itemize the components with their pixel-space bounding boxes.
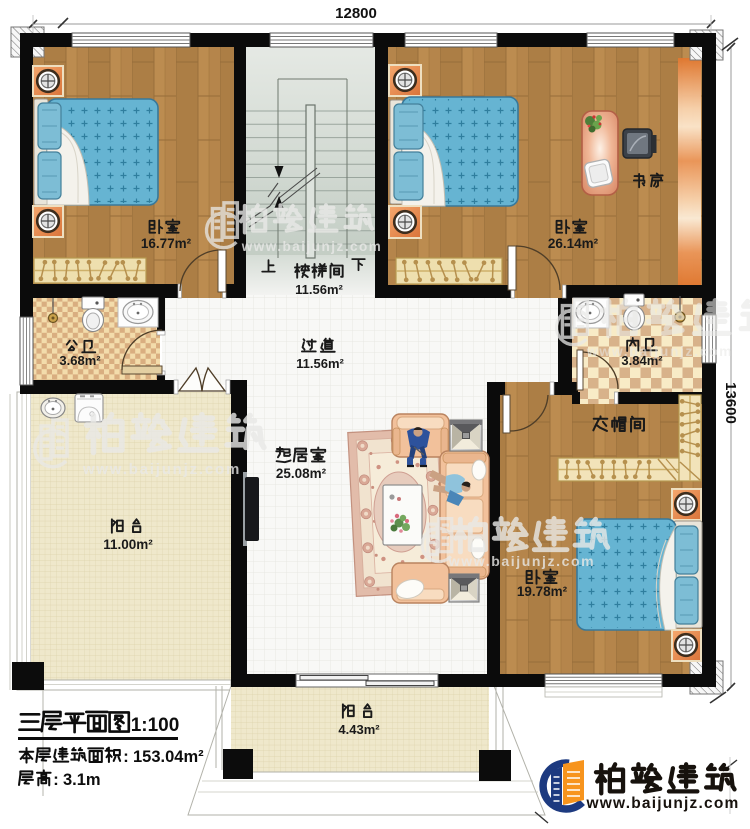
svg-text:19.78m²: 19.78m² — [517, 584, 568, 599]
svg-text:11.00m²: 11.00m² — [103, 537, 153, 552]
svg-text:26.14m²: 26.14m² — [548, 236, 599, 251]
svg-text:www.baijunjz.com: www.baijunjz.com — [241, 239, 383, 254]
svg-text:www.baijunjz.com: www.baijunjz.com — [586, 795, 740, 812]
svg-text:16.77m²: 16.77m² — [141, 236, 192, 251]
svg-text:3.1m: 3.1m — [63, 771, 101, 789]
svg-text::: : — [53, 770, 59, 789]
svg-text:www.baijunjz.com: www.baijunjz.com — [448, 553, 595, 569]
svg-text:11.56m²: 11.56m² — [295, 282, 343, 297]
svg-text:12800: 12800 — [335, 5, 377, 22]
svg-text:3.68m²: 3.68m² — [59, 353, 101, 368]
svg-text:153.04m²: 153.04m² — [133, 748, 204, 766]
svg-text:25.08m²: 25.08m² — [276, 466, 327, 481]
svg-text:13600: 13600 — [722, 382, 739, 424]
svg-text:www.baijunjz.com: www.baijunjz.com — [586, 343, 733, 359]
svg-text:1:100: 1:100 — [131, 715, 180, 736]
svg-text:www.baijunjz.com: www.baijunjz.com — [82, 461, 241, 478]
svg-text:4.43m²: 4.43m² — [338, 722, 380, 737]
svg-text::: : — [123, 747, 129, 766]
svg-text:11.56m²: 11.56m² — [296, 356, 344, 371]
